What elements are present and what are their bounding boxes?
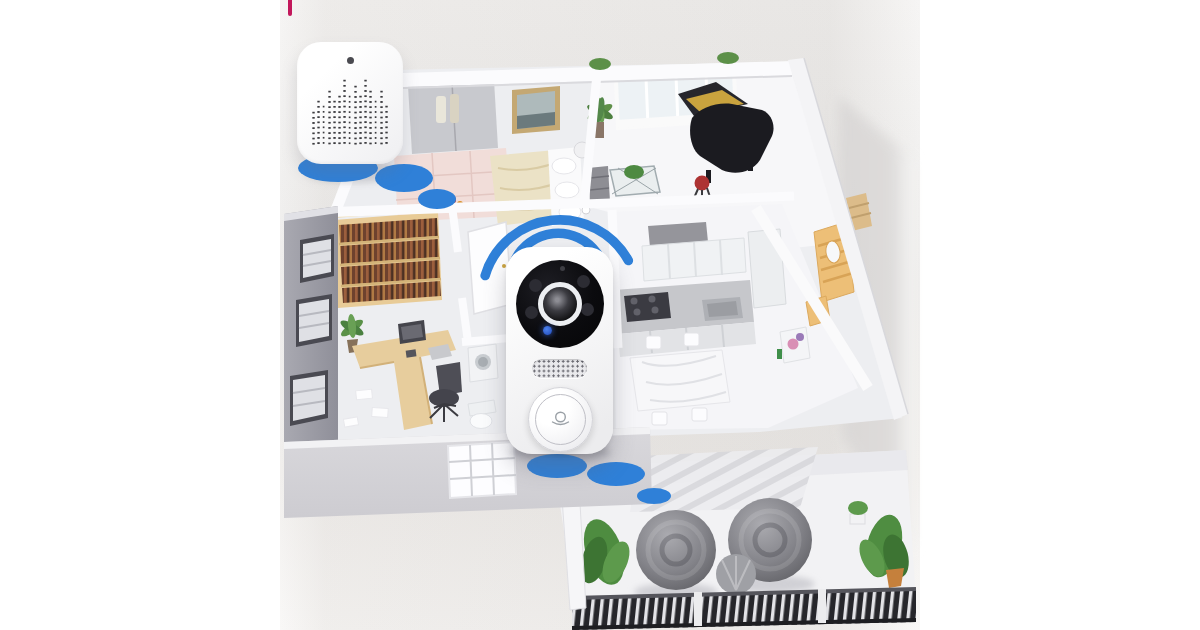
ir-led	[581, 303, 594, 316]
railing-post	[818, 589, 826, 623]
table-plant	[624, 165, 644, 179]
microphone-hole	[560, 266, 565, 271]
doorbell-ring-icon	[550, 409, 571, 430]
pillow	[555, 182, 579, 198]
front-window-part	[448, 442, 516, 498]
hanging-clothes	[436, 96, 446, 123]
wall-window-part	[303, 239, 331, 278]
status-led	[543, 326, 552, 335]
dining-chair	[684, 333, 699, 346]
dining-chair	[646, 336, 661, 349]
wall-window	[290, 370, 328, 426]
piano-leg	[748, 158, 753, 171]
doorbell-speaker-grille	[532, 359, 587, 378]
dining-chair	[652, 412, 667, 425]
left-exterior-wall	[284, 206, 338, 452]
signal-floor-spot	[637, 488, 671, 504]
wall-window	[300, 234, 334, 283]
burner	[634, 309, 641, 316]
ir-led	[577, 275, 590, 288]
signal-floor-spot	[527, 454, 587, 478]
signal-floor-spot	[418, 189, 456, 209]
green-bottle	[777, 349, 782, 359]
signal-floor-spot	[587, 462, 645, 486]
product-illustration	[0, 0, 1200, 630]
small-planter-part	[850, 514, 865, 524]
purple-towel	[796, 333, 804, 341]
wall-plant-tuft	[717, 52, 739, 64]
wall-window	[296, 294, 332, 347]
dining-chair	[692, 408, 707, 421]
toilet-bowl	[470, 414, 492, 429]
ir-led	[525, 306, 538, 319]
wall-window-part	[293, 375, 325, 421]
wall-window-part	[299, 299, 329, 342]
video-doorbell-device	[506, 247, 613, 454]
railing-post	[694, 592, 702, 626]
front-window	[448, 442, 516, 498]
burner	[649, 296, 656, 303]
paper-sheet	[356, 389, 373, 400]
speaker-dot-column	[384, 104, 389, 146]
wireless-chime-device	[297, 42, 403, 164]
stove	[624, 292, 671, 322]
small-planter-part	[848, 501, 868, 515]
washer-door-inner	[478, 357, 488, 367]
wall-plant-tuft	[589, 58, 611, 70]
burner	[631, 298, 638, 305]
chime-speaker-grille	[311, 76, 389, 146]
camera-module	[516, 260, 604, 348]
burner	[652, 307, 659, 314]
paper-sheet	[372, 407, 389, 417]
pillow	[552, 158, 576, 174]
doorbell-ring-icon-part	[556, 412, 566, 422]
camera-lens	[538, 282, 582, 326]
hanging-clothes	[450, 94, 459, 123]
signal-floor-spot	[375, 164, 433, 192]
doorbell-button	[528, 387, 593, 452]
glass-table	[610, 165, 660, 196]
small-planter	[848, 501, 868, 524]
desk-phone	[406, 349, 417, 357]
chime-led-indicator	[347, 57, 354, 64]
ir-led	[529, 279, 542, 292]
pink-towel	[788, 339, 799, 350]
door-handle	[502, 264, 506, 268]
paper-sheet	[343, 417, 358, 427]
